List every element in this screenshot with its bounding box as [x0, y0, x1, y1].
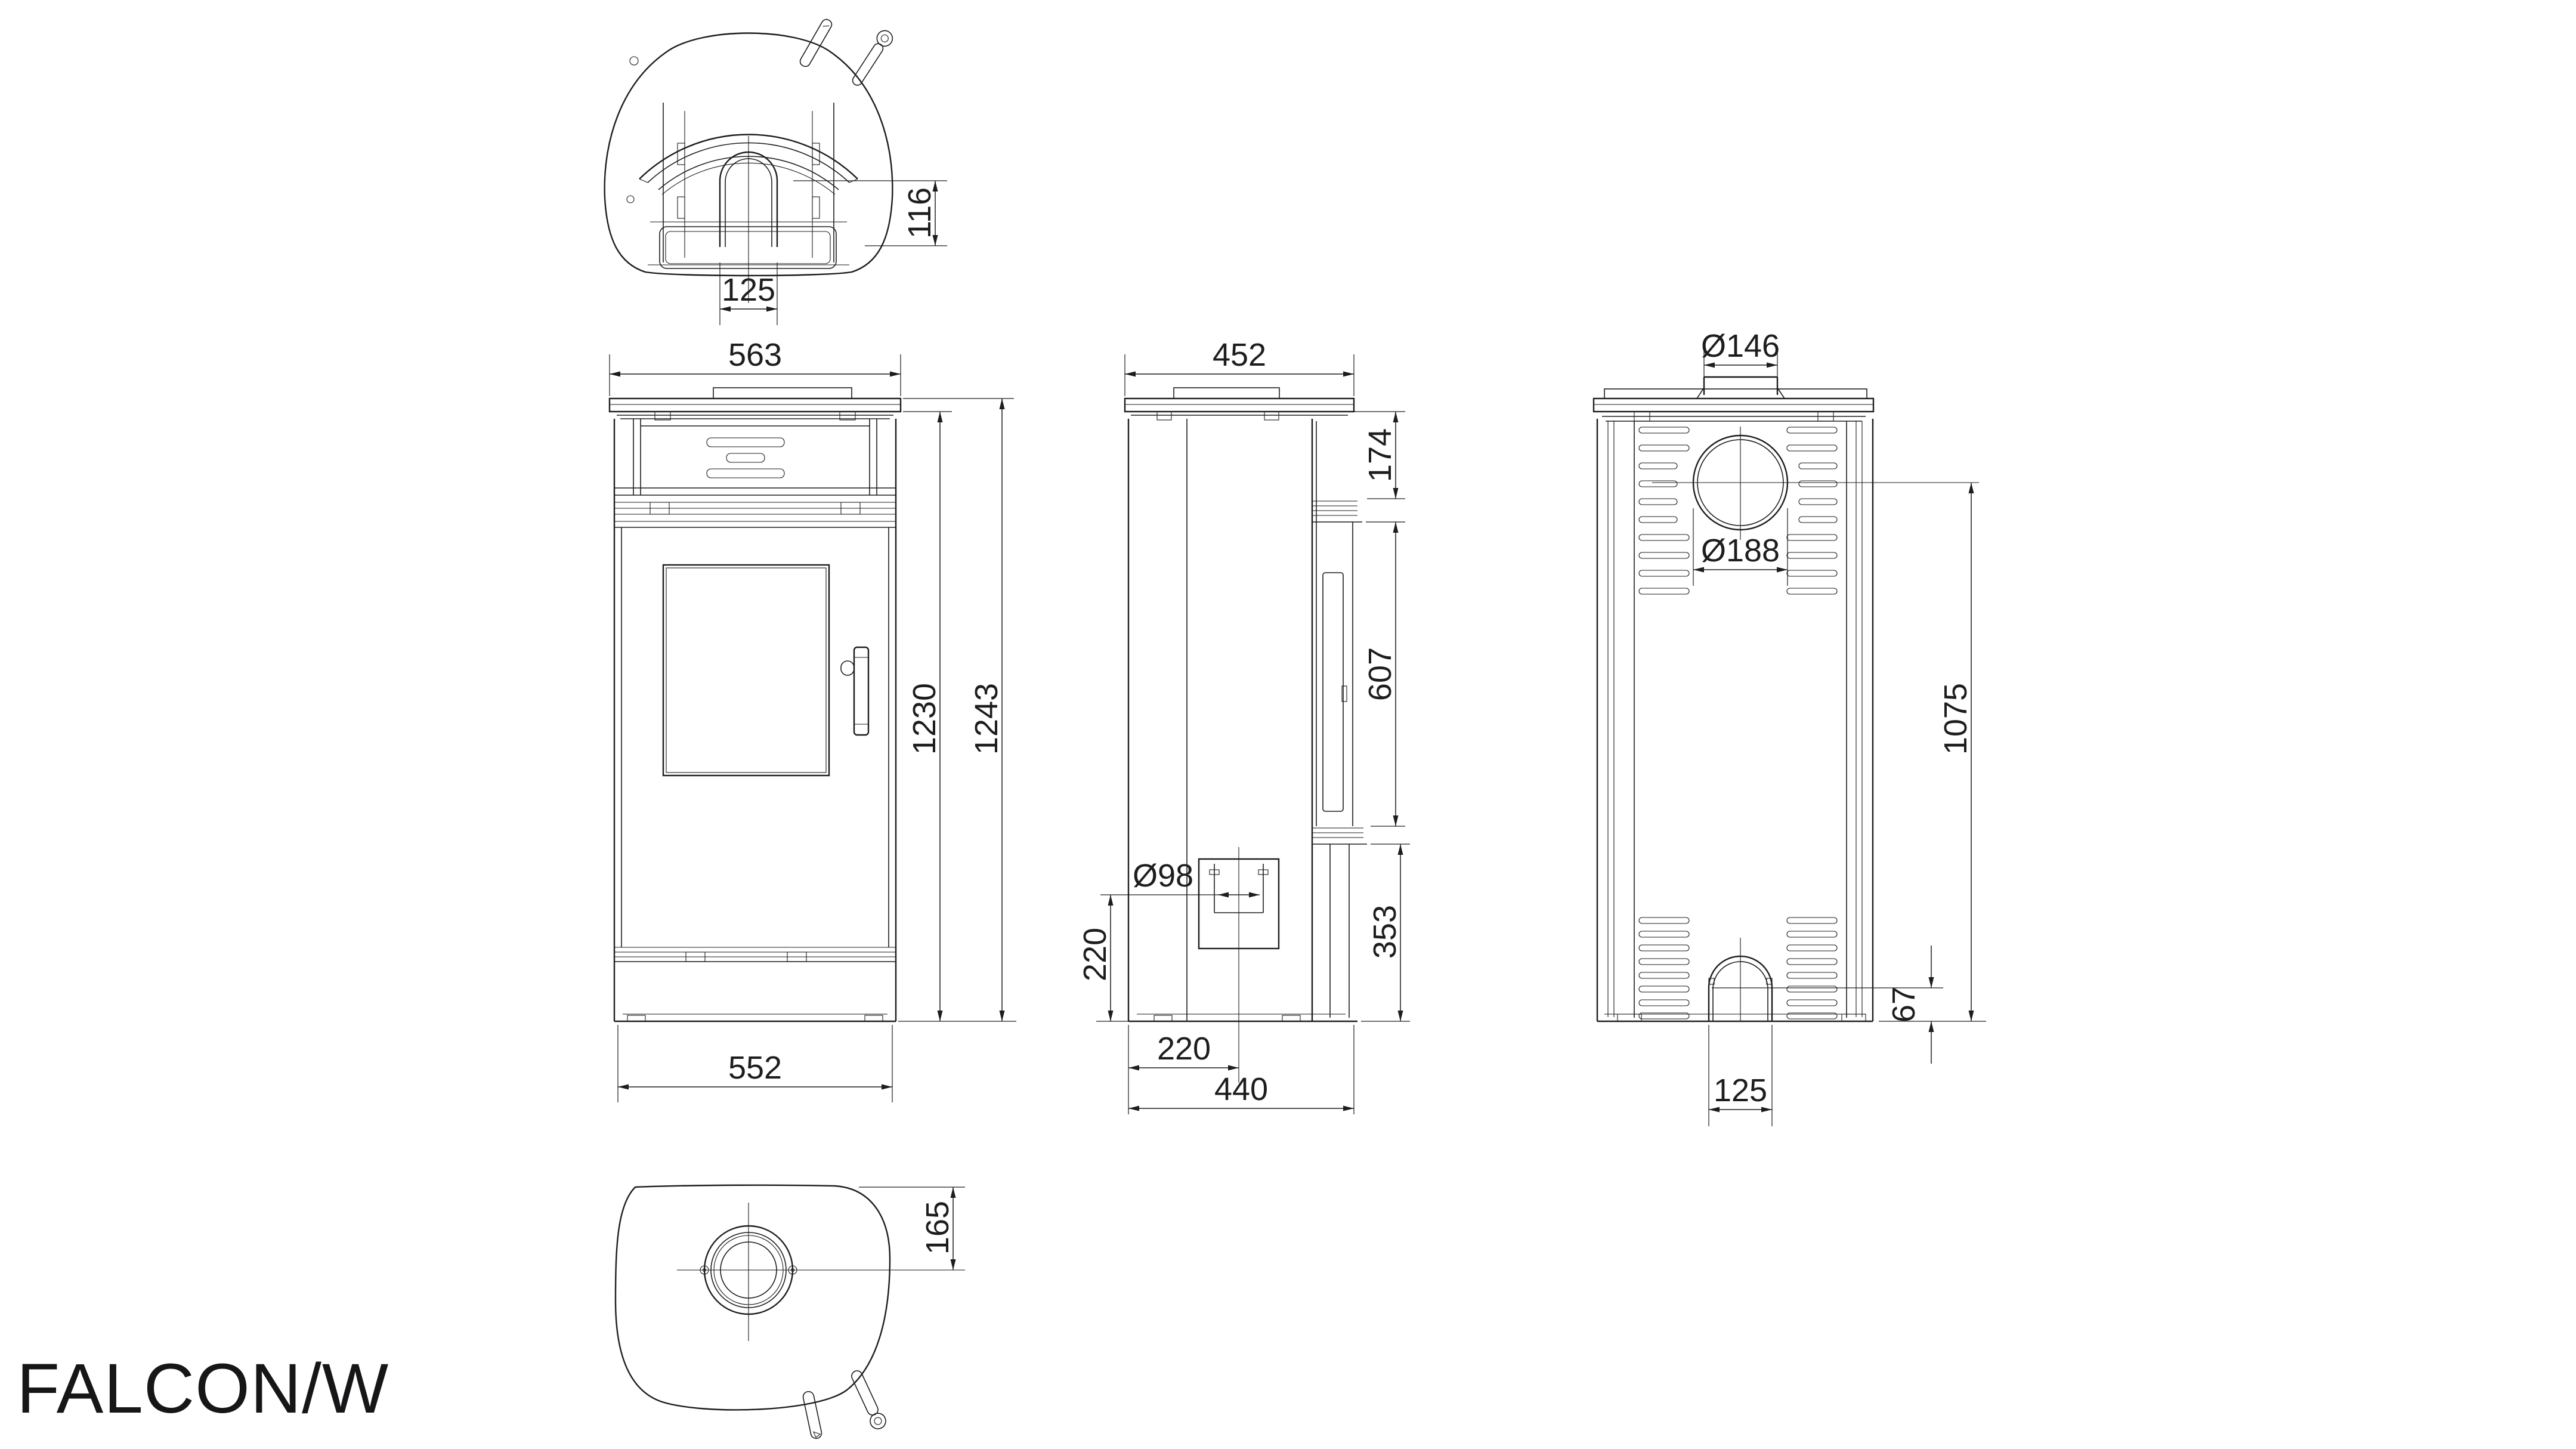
dim-label: 1075 — [1938, 683, 1974, 755]
dim-label: 165 — [920, 1201, 955, 1255]
side-view: 452 174 607 353 Ø98 220 — [1077, 337, 1410, 1114]
front-view: 563 1230 1243 552 — [610, 337, 1016, 1102]
dim-back-arch-width: 125 — [1709, 1025, 1772, 1126]
dim-label: 220 — [1077, 928, 1113, 981]
dim-label: 353 — [1367, 905, 1403, 959]
dim-label: 116 — [902, 187, 938, 239]
damper-handle-bottom — [848, 1368, 888, 1431]
dim-label: 67 — [1886, 987, 1922, 1022]
damper-handle — [848, 27, 895, 88]
dim-back-flue-axis-height: 1075 — [1879, 483, 1986, 1021]
model-title: FALCON/W — [17, 1349, 389, 1428]
dim-label: 552 — [728, 1050, 782, 1086]
rear-arch-opening — [1709, 938, 1772, 1021]
dim-top-flue-to-front: 116 — [793, 181, 947, 246]
dim-label: 440 — [1214, 1071, 1268, 1107]
dim-bottom-flue-axis-offset: 165 — [859, 1187, 965, 1270]
dim-label: 125 — [1714, 1073, 1767, 1108]
dim-side-top-depth: 452 — [1125, 337, 1354, 396]
dim-side-rear-lower: 353 — [1361, 844, 1410, 1021]
dim-label: 1230 — [907, 683, 942, 755]
dim-back-arch-height: 67 — [1712, 946, 1943, 1064]
dim-label: 174 — [1362, 428, 1398, 482]
door-handle — [841, 647, 868, 735]
dim-back-collar-diameter: Ø146 — [1701, 328, 1780, 387]
dim-label: 125 — [722, 272, 775, 308]
top-section-view: 116 125 — [605, 18, 947, 325]
technical-drawing: 116 125 — [0, 0, 2576, 1449]
dim-front-top-width: 563 — [610, 337, 901, 396]
dim-front-base-width: 552 — [618, 1025, 892, 1102]
dim-label: 607 — [1362, 647, 1398, 701]
dim-front-body-height: 1230 — [903, 412, 952, 1021]
drawing-sheet: 116 125 — [0, 0, 2576, 1449]
door-handle-lever — [799, 18, 834, 69]
dim-label: Ø146 — [1701, 328, 1780, 364]
back-view: Ø146 Ø188 1075 67 125 — [1594, 328, 1986, 1126]
upper-vent-slats — [1639, 427, 1837, 594]
air-inlet-connector — [1199, 847, 1279, 1083]
bottom-view: 165 — [616, 1185, 965, 1439]
dim-label: 1243 — [969, 683, 1004, 755]
lower-vent-slats — [1639, 917, 1837, 1019]
dim-label: Ø188 — [1701, 533, 1780, 569]
dim-side-glass-height: 607 — [1362, 522, 1405, 826]
door-handle-bottom — [802, 1391, 822, 1439]
dim-side-rear-upper: 174 — [1319, 412, 1405, 499]
dim-top-flue-width: 125 — [720, 262, 777, 325]
dim-label: 452 — [1213, 337, 1266, 373]
dim-label: Ø98 — [1133, 858, 1193, 894]
dim-label: 220 — [1157, 1031, 1211, 1067]
dim-label: 563 — [728, 337, 782, 373]
dim-side-inlet-diameter: Ø98 — [1100, 858, 1260, 895]
